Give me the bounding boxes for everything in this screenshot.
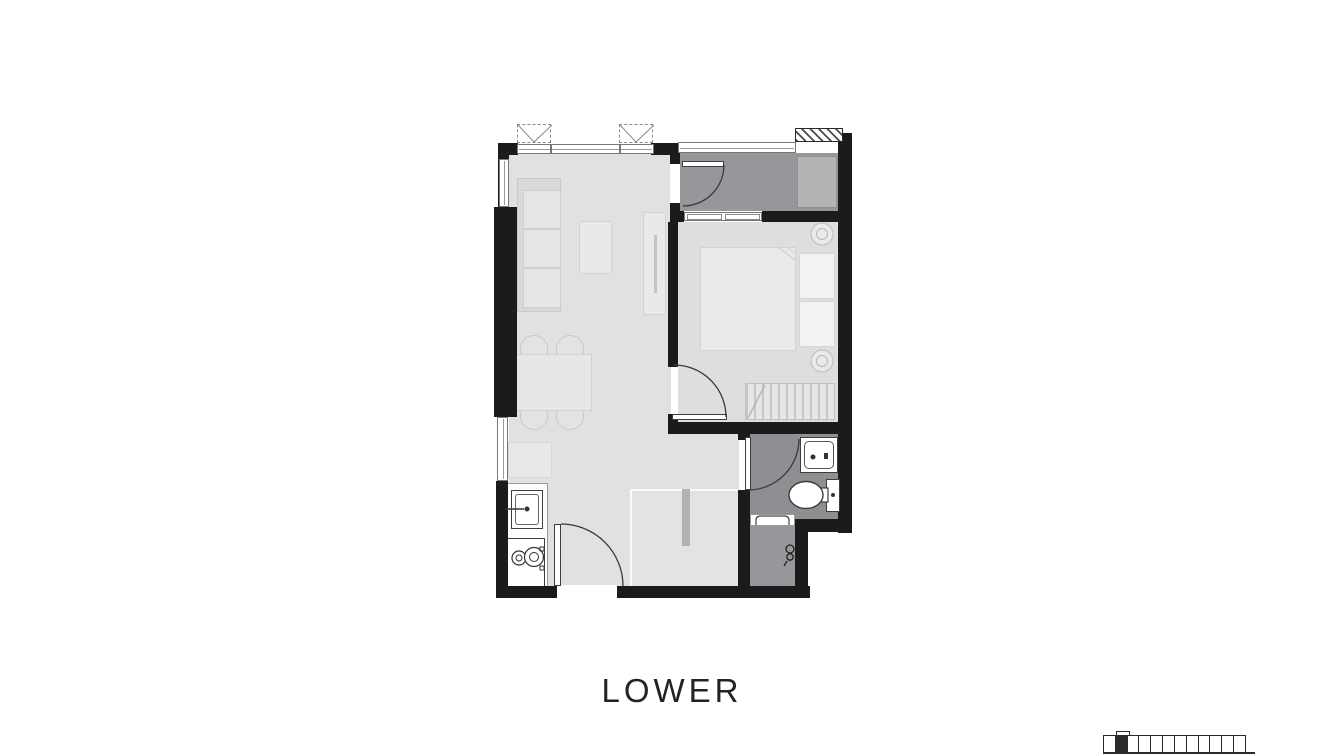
sofa-cushion [523, 190, 561, 229]
wall-left-mid [494, 207, 517, 417]
bedroom-window [684, 212, 762, 221]
floor-plan: LOWER [0, 0, 1342, 754]
key-plan-unit [1210, 736, 1222, 753]
foyer-door-leaf [682, 161, 724, 167]
bathroom-door-leaf [745, 437, 751, 490]
left-wall-window-lower [497, 417, 508, 481]
wall-right [838, 133, 852, 533]
page-title: LOWER [497, 672, 847, 712]
toilet-tank [826, 479, 840, 512]
wall-utility-right [795, 519, 808, 598]
bathroom-threshold [750, 514, 795, 526]
wall-left-lower [496, 481, 508, 593]
key-plan-unit [1104, 736, 1116, 753]
foyer-top-band [678, 142, 796, 153]
sofa-cushion [523, 268, 561, 308]
wall-living-bedroom [668, 222, 678, 367]
cooktop [507, 538, 545, 587]
utility-floor [750, 520, 797, 586]
sofa-cushion [523, 229, 561, 268]
wall-bottom [496, 586, 810, 598]
bedroom-door-leaf [672, 414, 727, 420]
wardrobe [745, 383, 835, 420]
left-wall-window-upper [499, 159, 509, 207]
stair-rail [682, 489, 690, 546]
coffee-table [579, 221, 612, 274]
dining-table [516, 354, 592, 411]
foyer-cabinet [797, 156, 837, 208]
key-plan-unit [1163, 736, 1175, 753]
wall-bedroom-bottom [668, 422, 850, 434]
living-window-band [517, 144, 654, 154]
awning-window-symbol [517, 124, 551, 143]
bed-mattress [700, 247, 796, 351]
ac-unit-icon [795, 128, 843, 142]
key-plan-unit [1187, 736, 1199, 753]
kitchen-cabinet [508, 442, 552, 478]
tv-icon [654, 235, 657, 293]
key-plan-unit [1234, 736, 1245, 753]
key-plan-unit [1128, 736, 1140, 753]
key-plan-unit [1139, 736, 1151, 753]
entry-door-opening [557, 585, 617, 599]
key-plan-unit [1199, 736, 1211, 753]
entry-door-leaf [554, 524, 561, 586]
key-plan-unit [1222, 736, 1234, 753]
kitchen-sink-basin [515, 494, 539, 525]
foyer-door-opening [670, 164, 680, 203]
plan-detail-overlay [0, 0, 1342, 754]
bathroom-sink-basin [804, 441, 834, 469]
key-plan-unit [1151, 736, 1163, 753]
wall-bath-left-lower [738, 490, 750, 598]
bed-pillow [799, 301, 835, 347]
awning-window-symbol [619, 124, 653, 143]
bed-pillow [799, 253, 835, 299]
key-plan-unit-highlighted [1116, 736, 1128, 753]
key-plan-unit [1175, 736, 1187, 753]
